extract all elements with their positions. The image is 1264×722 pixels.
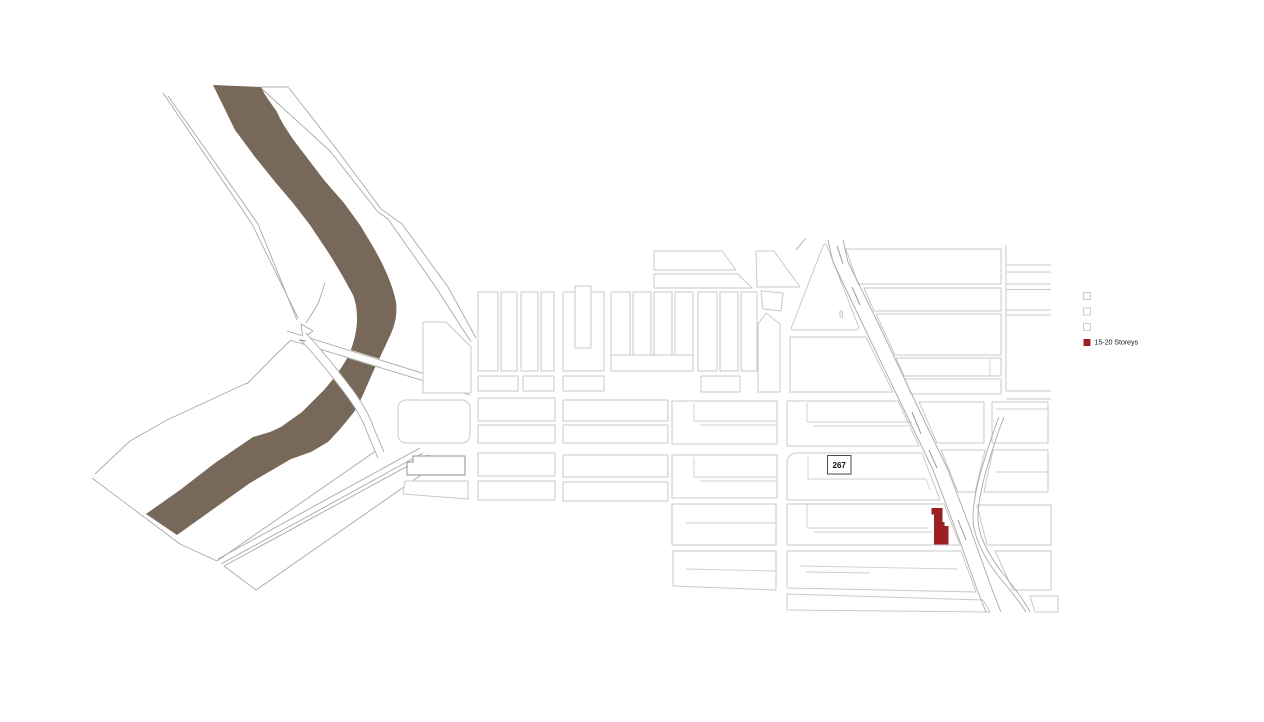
svg-text:15-20 Storeys: 15-20 Storeys — [1095, 338, 1139, 347]
svg-text:267: 267 — [833, 461, 847, 470]
